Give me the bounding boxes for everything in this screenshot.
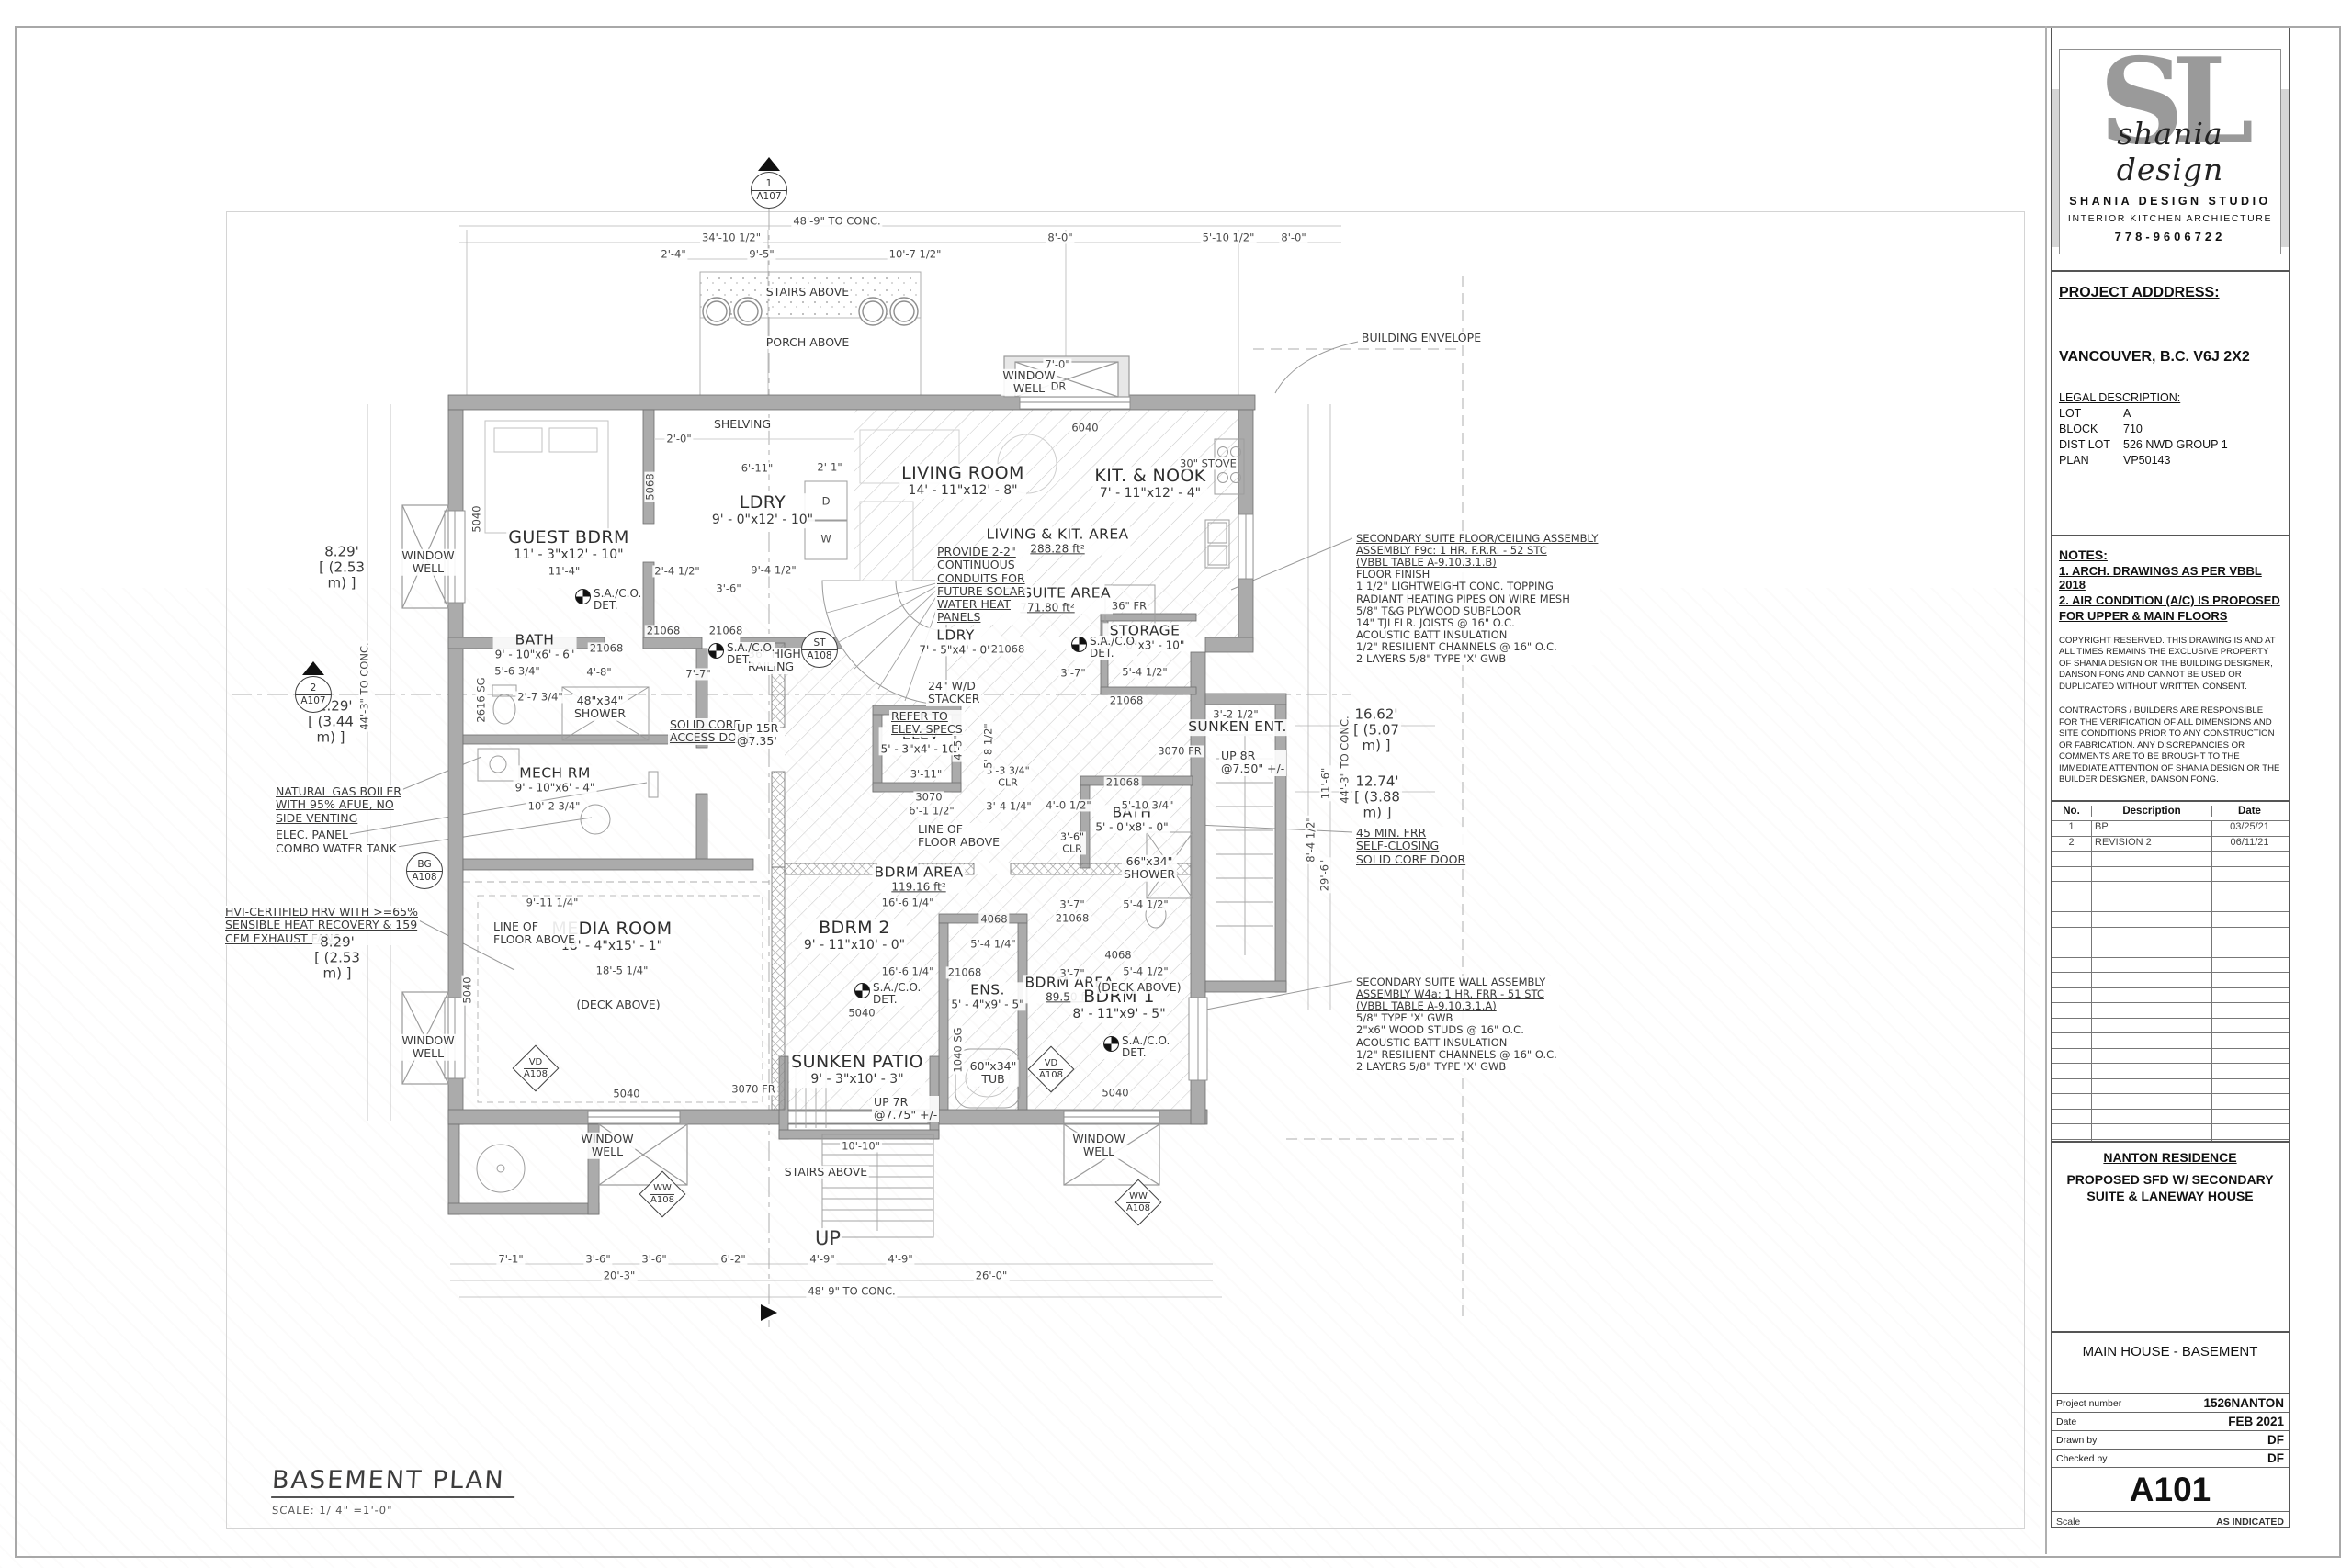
project-address-box: PROJECT ADDDRESS: VANCOUVER, B.C. V6J 2X… — [2051, 271, 2290, 536]
revision-row — [2052, 1003, 2289, 1019]
plan-title-block: BASEMENT PLAN SCALE: 1/ 4" =1'-0" — [272, 1466, 515, 1517]
plan-title: BASEMENT PLAN — [271, 1466, 516, 1498]
revision-row — [2052, 1124, 2289, 1140]
revision-row — [2052, 1033, 2289, 1049]
logo-tagline: INTERIOR KITCHEN ARCHIECTURE — [2060, 213, 2280, 224]
sheet-info-row: Drawn byDF — [2052, 1431, 2289, 1450]
project-address: VANCOUVER, B.C. V6J 2X2 — [2059, 349, 2281, 366]
plan-scale-note: SCALE: 1/ 4" =1'-0" — [272, 1504, 516, 1517]
project-address-heading: PROJECT ADDDRESS: — [2059, 285, 2281, 301]
drawing-sheet: GUEST BDRM11' - 3"x12' - 10"LDRY9' - 0"x… — [0, 0, 2352, 1568]
notes-heading: NOTES: — [2059, 547, 2281, 562]
suite-hatch-areas — [785, 410, 1238, 1110]
contractors-paragraph: CONTRACTORS / BUILDERS ARE RESPONSIBLE F… — [2059, 705, 2281, 785]
revision-row — [2052, 942, 2289, 958]
copyright-paragraph: COPYRIGHT RESERVED. THIS DRAWING IS AND … — [2059, 636, 2281, 693]
residence-name: NANTON RESIDENCE — [2057, 1150, 2283, 1165]
sheet-info-row: Checked byDF — [2052, 1450, 2289, 1468]
project-name-box: NANTON RESIDENCE PROPOSED SFD W/ SECONDA… — [2051, 1142, 2290, 1332]
revision-row — [2052, 973, 2289, 988]
note-line: 1. ARCH. DRAWINGS AS PER VBBL 2018 — [2059, 564, 2281, 592]
notes-lines: 1. ARCH. DRAWINGS AS PER VBBL 20182. AIR… — [2059, 564, 2281, 623]
notes-box: NOTES: 1. ARCH. DRAWINGS AS PER VBBL 201… — [2051, 536, 2290, 801]
porch-above — [700, 272, 921, 397]
sheet-title-box: MAIN HOUSE - BASEMENT — [2051, 1332, 2290, 1393]
note-line: 2. AIR CONDITION (A/C) IS PROPOSED — [2059, 593, 2281, 607]
sheet-info-row: Project number1526NANTON — [2052, 1394, 2289, 1413]
sheet-info-row: DateFEB 2021 — [2052, 1413, 2289, 1431]
scale-value: AS INDICATED — [2216, 1517, 2284, 1528]
revision-row — [2052, 852, 2289, 867]
revision-row — [2052, 1064, 2289, 1079]
revision-row: 1BP03/25/21 — [2052, 821, 2289, 837]
revision-row — [2052, 1110, 2289, 1125]
section-arrow — [761, 1304, 777, 1321]
revision-row — [2052, 882, 2289, 897]
legal-row: PLANVP50143 — [2059, 454, 2281, 467]
sheet-info-box: Project number1526NANTONDateFEB 2021Draw… — [2051, 1393, 2290, 1528]
revision-row — [2052, 928, 2289, 943]
note-line: FOR UPPER & MAIN FLOORS — [2059, 609, 2281, 623]
sheet-number: A101 — [2052, 1468, 2289, 1512]
logo-box: SL shania design SHANIA DESIGN STUDIO IN… — [2051, 28, 2290, 271]
title-block: SL shania design SHANIA DESIGN STUDIO IN… — [2051, 26, 2291, 1532]
revision-table: No. Description Date 1BP03/25/212REVISIO… — [2051, 801, 2290, 1142]
legal-description-heading: LEGAL DESCRIPTION: — [2059, 391, 2281, 404]
revision-row — [2052, 1094, 2289, 1110]
revision-row — [2052, 988, 2289, 1004]
legal-row: BLOCK710 — [2059, 423, 2281, 435]
scale-label: Scale — [2056, 1517, 2080, 1528]
project-description: PROPOSED SFD W/ SECONDARY SUITE & LANEWA… — [2057, 1172, 2283, 1204]
logo-script: shania design — [2060, 116, 2280, 187]
revision-row — [2052, 1049, 2289, 1065]
logo-phone: 778-9606722 — [2060, 230, 2280, 243]
legal-description-rows: LOTABLOCK710DIST LOT526 NWD GROUP 1PLANV… — [2059, 407, 2281, 467]
floor-plan-canvas — [0, 0, 2352, 1568]
scale-row: Scale AS INDICATED — [2052, 1512, 2289, 1532]
logo-card: SL shania design SHANIA DESIGN STUDIO IN… — [2059, 49, 2281, 254]
revision-row: 2REVISION 206/11/21 — [2052, 837, 2289, 852]
legal-row: DIST LOT526 NWD GROUP 1 — [2059, 438, 2281, 451]
revision-row — [2052, 1079, 2289, 1095]
revision-row — [2052, 867, 2289, 883]
revision-table-header: No. Description Date — [2052, 802, 2289, 821]
revision-row — [2052, 1019, 2289, 1034]
logo-studio-name: SHANIA DESIGN STUDIO — [2060, 195, 2280, 208]
sheet-title: MAIN HOUSE - BASEMENT — [2052, 1344, 2289, 1359]
revision-row — [2052, 897, 2289, 913]
legal-row: LOTA — [2059, 407, 2281, 420]
revision-row — [2052, 958, 2289, 974]
revision-row — [2052, 912, 2289, 928]
